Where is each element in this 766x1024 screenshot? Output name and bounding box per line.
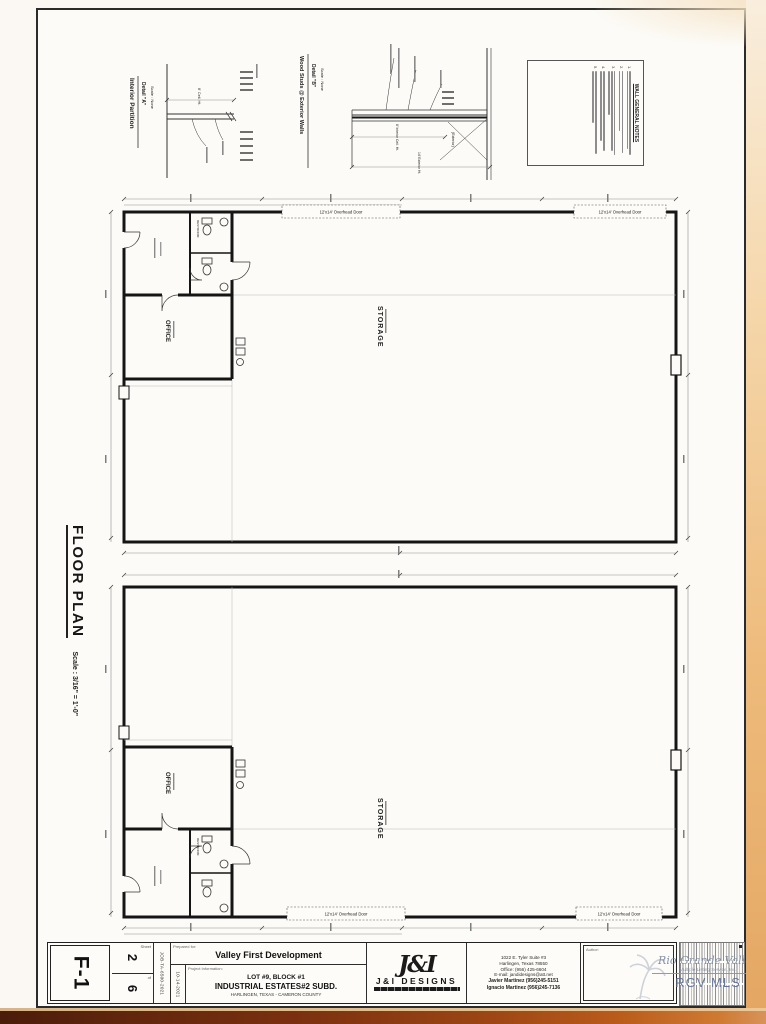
project-info-label: Project Information: — [188, 966, 223, 971]
upper-office-label: OFFICE — [164, 320, 170, 342]
lower-plan-fixtures — [119, 726, 681, 912]
lower-floor-plan: STORAGE OFFICE RESTROOM 12'x14' Overhead… — [102, 570, 697, 942]
detail-b-scale: Scale : None — [320, 68, 325, 92]
project-subdivision: INDUSTRIAL ESTATES#2 SUBD. — [215, 982, 337, 992]
sheet-number: Sheet 2 — [112, 943, 153, 973]
upper-restroom-label: RESTROOM — [196, 220, 200, 238]
upper-storage-label: STORAGE — [376, 306, 383, 348]
lower-plan-dimensions — [105, 570, 690, 934]
wall-general-notes: WALL GENERAL NOTES 1. 2. 3. 4. — [527, 60, 644, 166]
scanned-plan-page: Interior Partition Detail "A" Scale : No… — [0, 0, 766, 1024]
detail-a-scale: Scale : None — [150, 86, 155, 110]
sheet-total: of 6 — [112, 973, 153, 1004]
detail-b: Wood Studs @ Exterior Walls Detail "B" S… — [290, 40, 507, 190]
wall-note-item: 4. — [598, 66, 604, 160]
upper-plan-walls — [124, 212, 676, 542]
detail-b-title: Wood Studs @ Exterior Walls Detail "B" S… — [298, 54, 325, 168]
detail-b-title-text: Wood Studs @ Exterior Walls — [298, 56, 304, 134]
project-lot: LOT #9, BLOCK #1 — [247, 974, 305, 982]
upper-plan-extension-lines — [124, 295, 676, 542]
detail-a-title-text: Interior Partition — [128, 78, 135, 129]
client-name: Valley First Development — [215, 950, 322, 960]
project-cell: Prepared for: Valley First Development 1… — [171, 943, 367, 1003]
prepared-for-label: Prepared for: — [173, 944, 196, 949]
detail-a-dim: 8' Ceil. Ht. — [197, 88, 201, 105]
page-edge-tint — [746, 0, 766, 1011]
wall-note-item: 5. — [591, 66, 597, 160]
detail-b-dim1: 8' Interior Ceil. Ht. — [395, 124, 399, 151]
detail-a-drawing: 8' Ceil. Ht. — [165, 64, 258, 178]
floor-plan-title-text: FLOOR PLAN — [66, 525, 86, 638]
detail-b-name: Detail "B" — [310, 64, 316, 88]
overhead-door-tag: 12'x14' Overhead Door — [598, 912, 641, 917]
floor-plan-title: FLOOR PLAN Scale : 3/16" = 1'-0" — [54, 525, 88, 735]
title-block: F-1 Sheet 2 of 6 JOB-TA-6500-2021 Prepar… — [47, 942, 677, 1004]
lower-restroom-label: RESTROOM — [196, 838, 200, 856]
upper-plan-fixtures — [119, 218, 681, 399]
sheet-id-cell: F-1 — [50, 945, 110, 1001]
detail-b-dim2: 14' Exterior Ht. — [417, 152, 421, 174]
floor-plan-scale: Scale : 3/16" = 1'-0" — [71, 652, 78, 717]
detail-b-drawing: 8' Interior Ceil. Ht. 14' Exterior Ht. (… — [350, 44, 492, 180]
lower-plan-extension-lines — [124, 587, 676, 829]
drawing-sheet: Interior Partition Detail "A" Scale : No… — [36, 8, 746, 1008]
project-county: HARLINGEN, TEXAS - CAMERON COUNTY — [231, 992, 322, 998]
jandi-logo: J&I J&I DESIGNS — [367, 943, 467, 1003]
upper-plan-dimensions — [105, 194, 690, 555]
lower-plan-walls — [124, 587, 676, 917]
sheet-number-cell: Sheet 2 of 6 — [112, 943, 154, 1003]
project-info: Project Information: LOT #9, BLOCK #1 IN… — [186, 965, 366, 1003]
bottom-gradient-bar — [0, 1011, 766, 1024]
upper-floor-plan: STORAGE OFFICE RESTROOM 12'x14' Overhead… — [102, 190, 697, 562]
job-number: JOB-TA-6500-2021 — [160, 951, 165, 995]
firm-contact2: Ignacio Martinez (956)245-7136 — [487, 985, 560, 992]
lower-office-label: OFFICE — [164, 772, 170, 794]
firm-contact-cell: 1022 E. Tyler Suite #3 Harlingen, Texas … — [467, 943, 581, 1003]
detail-b-side-label: (Exterior) — [451, 132, 455, 147]
lower-storage-label: STORAGE — [376, 798, 383, 840]
sheet-id: F-1 — [68, 956, 92, 991]
detail-a-name: Detail "A" — [140, 82, 146, 106]
firm-name: J&I DESIGNS — [376, 976, 457, 986]
wall-note-item: 2. — [617, 66, 623, 160]
author-label: Author: — [586, 947, 599, 952]
sheet-date: 10-14-2021 — [176, 971, 181, 997]
wall-note-item: 3. — [606, 66, 615, 160]
detail-a-title: Interior Partition Detail "A" Scale : No… — [128, 76, 155, 148]
wall-note-item: 1. — [625, 66, 631, 160]
overhead-door-tag: 12'x14' Overhead Door — [320, 210, 363, 215]
job-number-cell: JOB-TA-6500-2021 — [154, 943, 171, 1003]
upper-plan-room-labels: STORAGE OFFICE RESTROOM — [154, 220, 387, 348]
overhead-door-tag: 12'x14' Overhead Door — [599, 210, 642, 215]
strip-mark — [739, 945, 742, 948]
jandi-monogram-icon: J&I — [398, 955, 434, 975]
date-strip: 10-14-2021 — [171, 965, 186, 1003]
client-row: Prepared for: Valley First Development — [171, 943, 366, 965]
logo-tagline-strip — [374, 987, 460, 991]
wall-notes-title: WALL GENERAL NOTES — [633, 66, 639, 160]
detail-a: Interior Partition Detail "A" Scale : No… — [122, 52, 267, 190]
overhead-door-tag: 12'x14' Overhead Door — [325, 912, 368, 917]
page-corner-tint — [596, 0, 766, 46]
